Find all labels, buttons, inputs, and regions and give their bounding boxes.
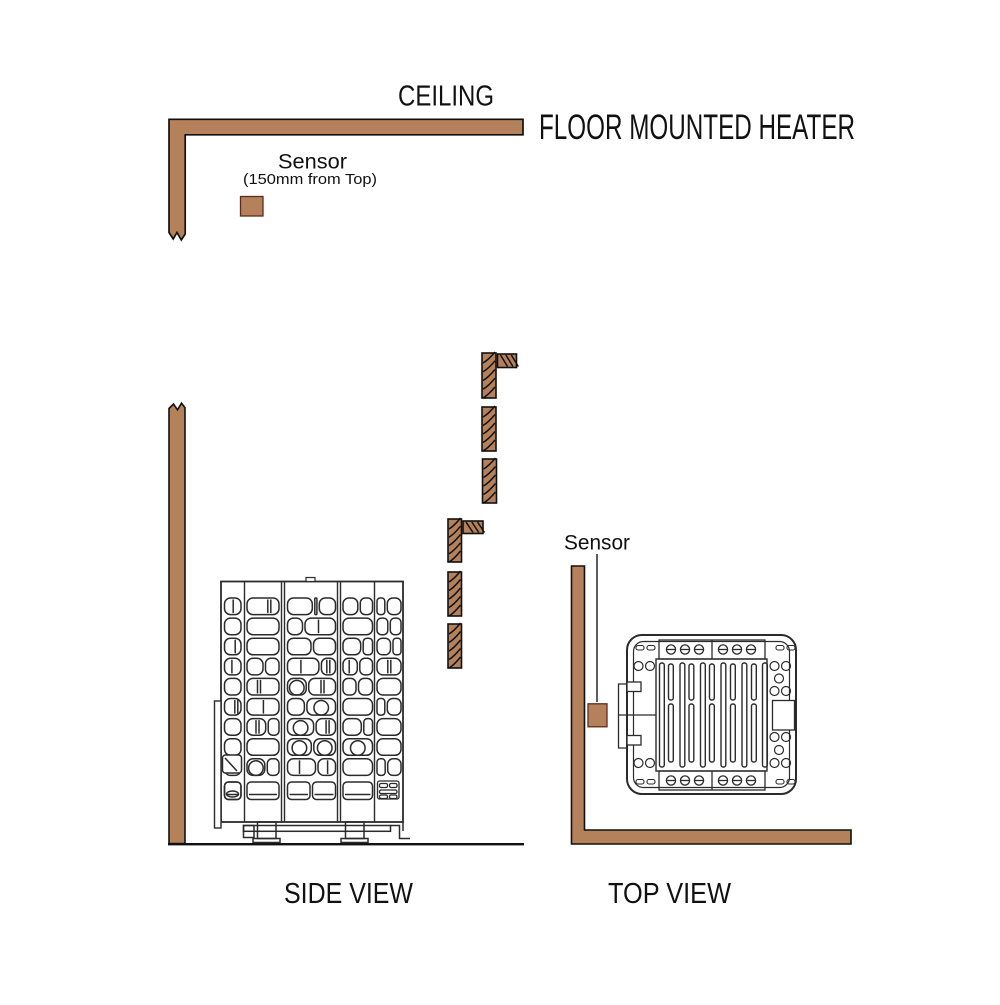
svg-text:FLOOR MOUNTED HEATER: FLOOR MOUNTED HEATER bbox=[539, 108, 855, 147]
svg-text:(150mm from Top): (150mm from Top) bbox=[243, 171, 377, 188]
svg-text:Sensor: Sensor bbox=[564, 532, 630, 555]
svg-text:TOP VIEW: TOP VIEW bbox=[608, 878, 731, 910]
svg-text:CEILING: CEILING bbox=[398, 81, 494, 113]
svg-text:SIDE VIEW: SIDE VIEW bbox=[284, 878, 413, 910]
